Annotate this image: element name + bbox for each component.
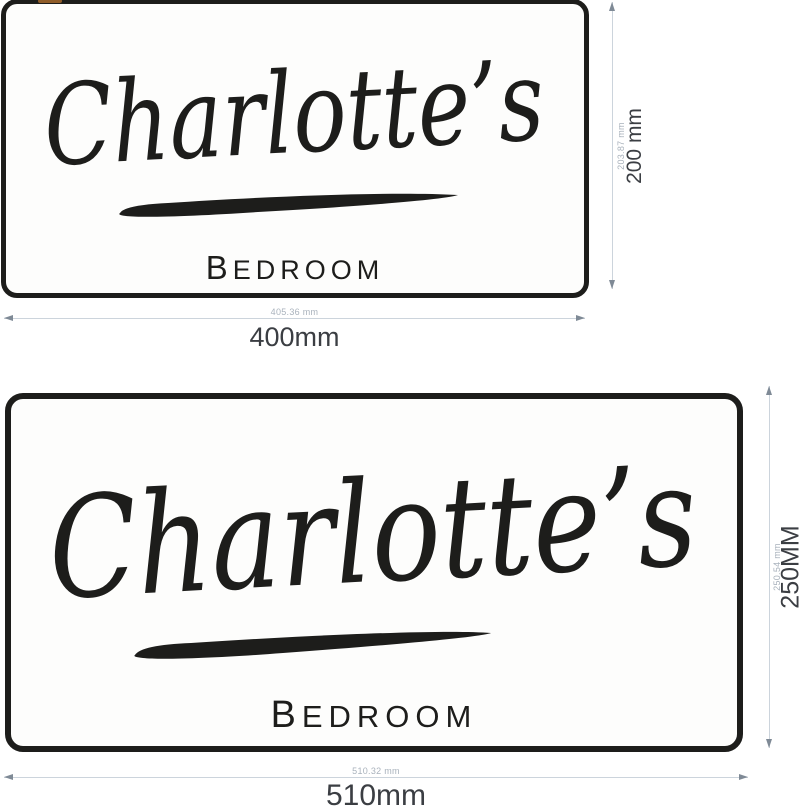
room-label-small: BEDROOM — [6, 249, 584, 287]
dimension-line — [769, 386, 770, 748]
underline-swoosh — [119, 194, 458, 217]
dimension-line — [4, 777, 748, 778]
height-label-large: 250MM — [777, 525, 800, 608]
script-name-text: Charlotte’s — [45, 435, 701, 632]
arrow-down-icon — [766, 739, 772, 748]
width-label-small: 400mm — [249, 322, 339, 353]
script-graphic-large: Charlotte’s — [11, 399, 737, 691]
width-label-large: 510mm — [326, 779, 426, 808]
arrow-left-icon — [4, 315, 13, 321]
wood-speck — [38, 0, 62, 3]
script-graphic-small: Charlotte’s — [6, 4, 584, 246]
sign-large: Charlotte’s BEDROOM — [5, 393, 743, 752]
width-dimension-small: 405.36 mm 400mm — [4, 310, 585, 358]
script-name-text: Charlotte’s — [41, 36, 547, 192]
sign-small: Charlotte’s BEDROOM — [1, 0, 589, 298]
underline-swoosh — [134, 632, 491, 659]
width-precise-large: 510.32 mm — [352, 766, 400, 776]
height-label-small: 200 mm — [623, 108, 647, 184]
arrow-up-icon — [609, 2, 615, 11]
arrow-right-icon — [576, 315, 585, 321]
arrow-left-icon — [4, 774, 13, 780]
arrow-down-icon — [609, 280, 615, 289]
dimension-line — [612, 2, 613, 289]
width-dimension-large: 510.32 mm 510mm — [4, 770, 748, 808]
product-dimension-diagram: Charlotte’s BEDROOM 203.87 mm 200 mm 405… — [0, 0, 800, 808]
height-dimension-large: 250.54 mm 250MM — [764, 386, 800, 748]
height-dimension-small: 203.87 mm 200 mm — [606, 2, 646, 289]
dimension-line — [4, 318, 585, 319]
width-precise-small: 405.36 mm — [271, 307, 319, 317]
room-label-large: BEDROOM — [11, 694, 737, 737]
arrow-up-icon — [766, 386, 772, 395]
arrow-right-icon — [739, 774, 748, 780]
